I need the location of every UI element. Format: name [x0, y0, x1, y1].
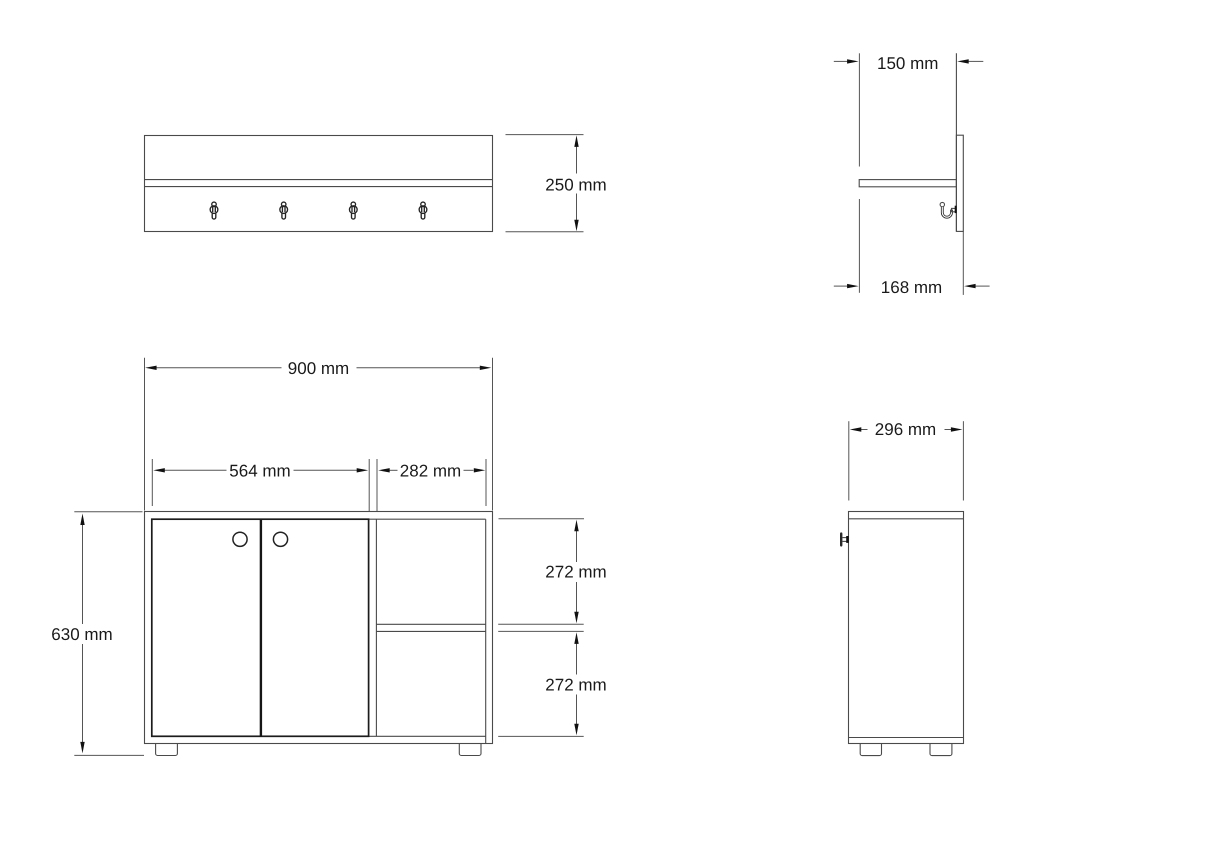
svg-text:564 mm: 564 mm	[229, 461, 290, 480]
svg-text:900 mm: 900 mm	[288, 359, 349, 378]
svg-text:272 mm: 272 mm	[545, 675, 606, 694]
svg-text:272 mm: 272 mm	[545, 563, 606, 582]
svg-text:250 mm: 250 mm	[545, 175, 606, 194]
svg-text:150 mm: 150 mm	[877, 54, 938, 73]
svg-text:296 mm: 296 mm	[875, 420, 936, 439]
svg-text:168 mm: 168 mm	[881, 278, 942, 297]
svg-text:630 mm: 630 mm	[51, 625, 112, 644]
svg-text:282 mm: 282 mm	[400, 461, 461, 480]
